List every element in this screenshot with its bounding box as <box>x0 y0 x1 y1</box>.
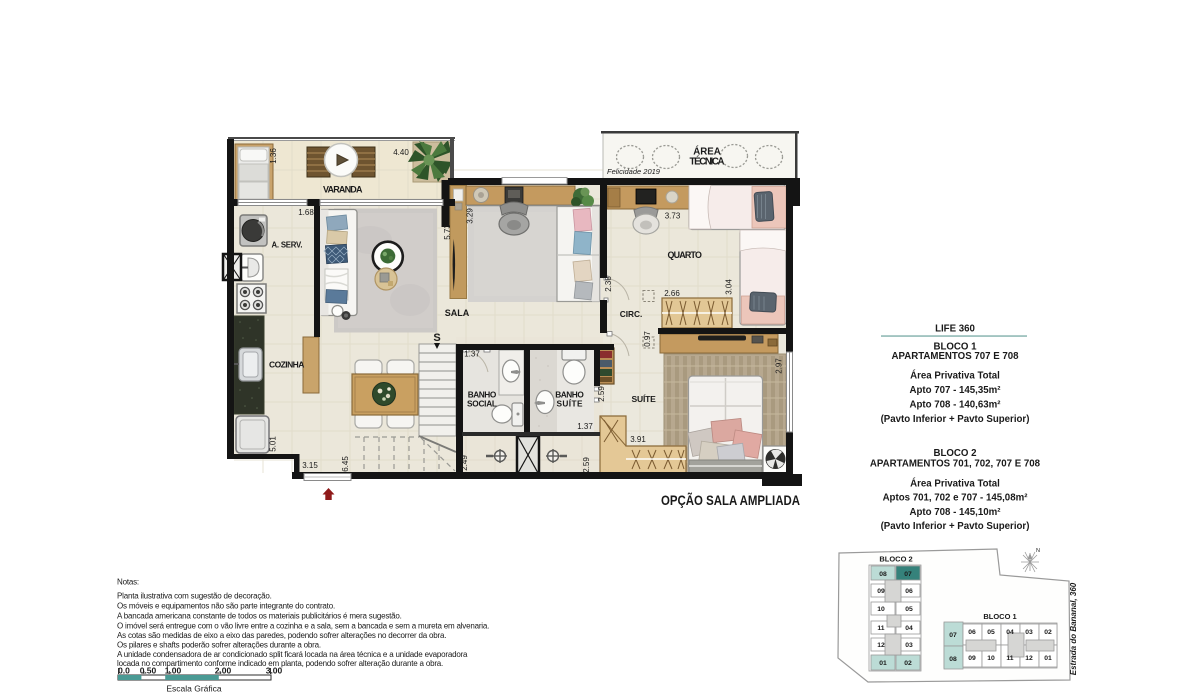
svg-text:3.04: 3.04 <box>725 279 734 295</box>
svg-text:2.49: 2.49 <box>460 455 469 471</box>
svg-text:5.73: 5.73 <box>443 224 452 240</box>
svg-text:Apto 708 - 145,10m²: Apto 708 - 145,10m² <box>910 507 1002 518</box>
svg-text:As cotas são medidas de eixo a: As cotas são medidas de eixo a eixo das … <box>117 631 446 640</box>
svg-text:03: 03 <box>905 642 913 649</box>
svg-text:12: 12 <box>877 642 885 649</box>
svg-text:S: S <box>433 332 440 344</box>
svg-text:1.36: 1.36 <box>269 148 278 164</box>
svg-text:0.50: 0.50 <box>140 666 157 676</box>
svg-text:0.97: 0.97 <box>643 331 652 347</box>
svg-text:01: 01 <box>1044 655 1052 662</box>
svg-text:QUARTO: QUARTO <box>668 250 702 260</box>
svg-text:12: 12 <box>1025 655 1033 662</box>
svg-text:COZINHA: COZINHA <box>269 360 304 370</box>
svg-text:09: 09 <box>968 655 976 662</box>
svg-text:APARTAMENTOS 701, 702, 707 E 7: APARTAMENTOS 701, 702, 707 E 708 <box>870 458 1041 469</box>
svg-text:1.00: 1.00 <box>165 666 182 676</box>
svg-text:APARTAMENTOS 707 E 708: APARTAMENTOS 707 E 708 <box>891 351 1019 362</box>
svg-text:04: 04 <box>1006 629 1014 636</box>
svg-text:CIRC.: CIRC. <box>620 309 643 319</box>
svg-text:1.68: 1.68 <box>298 208 314 217</box>
svg-text:BLOCO 1: BLOCO 1 <box>983 612 1016 621</box>
svg-text:N: N <box>1036 548 1040 554</box>
svg-text:SUÍTE: SUÍTE <box>557 399 583 409</box>
svg-text:A unidade condensadora de ar c: A unidade condensadora de ar condicionad… <box>117 650 468 659</box>
svg-text:LIFE 360: LIFE 360 <box>935 323 975 334</box>
svg-text:SALA: SALA <box>445 308 470 318</box>
svg-text:07: 07 <box>949 632 957 639</box>
svg-text:Escala Gráfica: Escala Gráfica <box>166 684 222 694</box>
svg-text:3.73: 3.73 <box>665 212 681 221</box>
svg-text:10: 10 <box>877 606 885 613</box>
svg-text:3.15: 3.15 <box>302 461 318 470</box>
svg-text:Estrada do Bananal, 360: Estrada do Bananal, 360 <box>1069 582 1078 675</box>
svg-text:11: 11 <box>877 625 884 632</box>
svg-text:2.66: 2.66 <box>664 289 680 298</box>
svg-text:Apto 708 - 140,63m²: Apto 708 - 140,63m² <box>910 400 1002 411</box>
svg-text:2.97: 2.97 <box>775 358 784 374</box>
svg-text:VARANDA: VARANDA <box>323 185 363 195</box>
svg-text:11: 11 <box>1006 655 1013 662</box>
svg-text:Os móveis e equipamentos não s: Os móveis e equipamentos não são parte i… <box>117 602 335 611</box>
svg-text:SOCIAL: SOCIAL <box>467 399 497 409</box>
svg-text:2.59: 2.59 <box>597 386 606 402</box>
svg-text:02: 02 <box>904 660 912 667</box>
svg-text:Notas:: Notas: <box>117 578 139 587</box>
svg-text:0.0: 0.0 <box>118 666 130 676</box>
svg-text:2.00: 2.00 <box>215 666 232 676</box>
svg-text:02: 02 <box>1044 629 1052 636</box>
svg-text:05: 05 <box>987 629 995 636</box>
svg-text:BLOCO 2: BLOCO 2 <box>933 448 976 459</box>
svg-text:(Pavto Inferior + Pavto Superi: (Pavto Inferior + Pavto Superior) <box>881 521 1030 532</box>
svg-text:09: 09 <box>877 588 885 595</box>
svg-text:06: 06 <box>905 588 913 595</box>
svg-text:3.29: 3.29 <box>466 208 475 224</box>
svg-text:3.91: 3.91 <box>630 435 646 444</box>
svg-text:3.00: 3.00 <box>266 666 283 676</box>
svg-text:Planta ilustrativa com sugestã: Planta ilustrativa com sugestão de decor… <box>117 592 272 601</box>
svg-text:5.01: 5.01 <box>269 436 278 452</box>
svg-text:08: 08 <box>949 656 957 663</box>
svg-text:1.37: 1.37 <box>464 350 480 359</box>
svg-text:2.59: 2.59 <box>582 457 591 473</box>
svg-text:05: 05 <box>905 606 913 613</box>
svg-text:OPÇÃO SALA AMPLIADA: OPÇÃO SALA AMPLIADA <box>661 493 800 508</box>
svg-text:TÉCNICA: TÉCNICA <box>690 157 725 168</box>
svg-text:06: 06 <box>968 629 976 636</box>
svg-text:08: 08 <box>879 571 887 578</box>
svg-text:A bancada americana constante: A bancada americana constante de todos o… <box>117 612 402 621</box>
svg-text:SUÍTE: SUÍTE <box>632 394 657 404</box>
svg-text:1.37: 1.37 <box>577 422 593 431</box>
svg-text:4.40: 4.40 <box>393 148 409 157</box>
svg-text:Felicidade 2019: Felicidade 2019 <box>607 167 661 176</box>
svg-text:A. SERV.: A. SERV. <box>272 241 303 250</box>
svg-text:O imóvel será entregue com o v: O imóvel será entregue com o vão livre e… <box>117 622 489 631</box>
svg-text:03: 03 <box>1025 629 1033 636</box>
svg-text:10: 10 <box>987 655 995 662</box>
svg-text:Apto 707 - 145,35m²: Apto 707 - 145,35m² <box>910 385 1002 396</box>
svg-text:BLOCO 2: BLOCO 2 <box>879 555 912 564</box>
svg-text:2.38: 2.38 <box>604 276 613 292</box>
svg-text:01: 01 <box>879 660 887 667</box>
svg-text:6.45: 6.45 <box>341 456 350 472</box>
svg-text:Aptos 701, 702 e 707 - 145,08m: Aptos 701, 702 e 707 - 145,08m² <box>883 493 1029 504</box>
svg-text:07: 07 <box>904 571 912 578</box>
svg-text:Área Privativa Total: Área Privativa Total <box>910 370 1000 381</box>
svg-text:04: 04 <box>905 625 913 632</box>
svg-text:(Pavto Inferior + Pavto Superi: (Pavto Inferior + Pavto Superior) <box>881 414 1030 425</box>
svg-text:Área Privativa Total: Área Privativa Total <box>910 479 1000 490</box>
svg-text:Os pilares e shafts poderão so: Os pilares e shafts poderão sofrer alter… <box>117 641 321 650</box>
